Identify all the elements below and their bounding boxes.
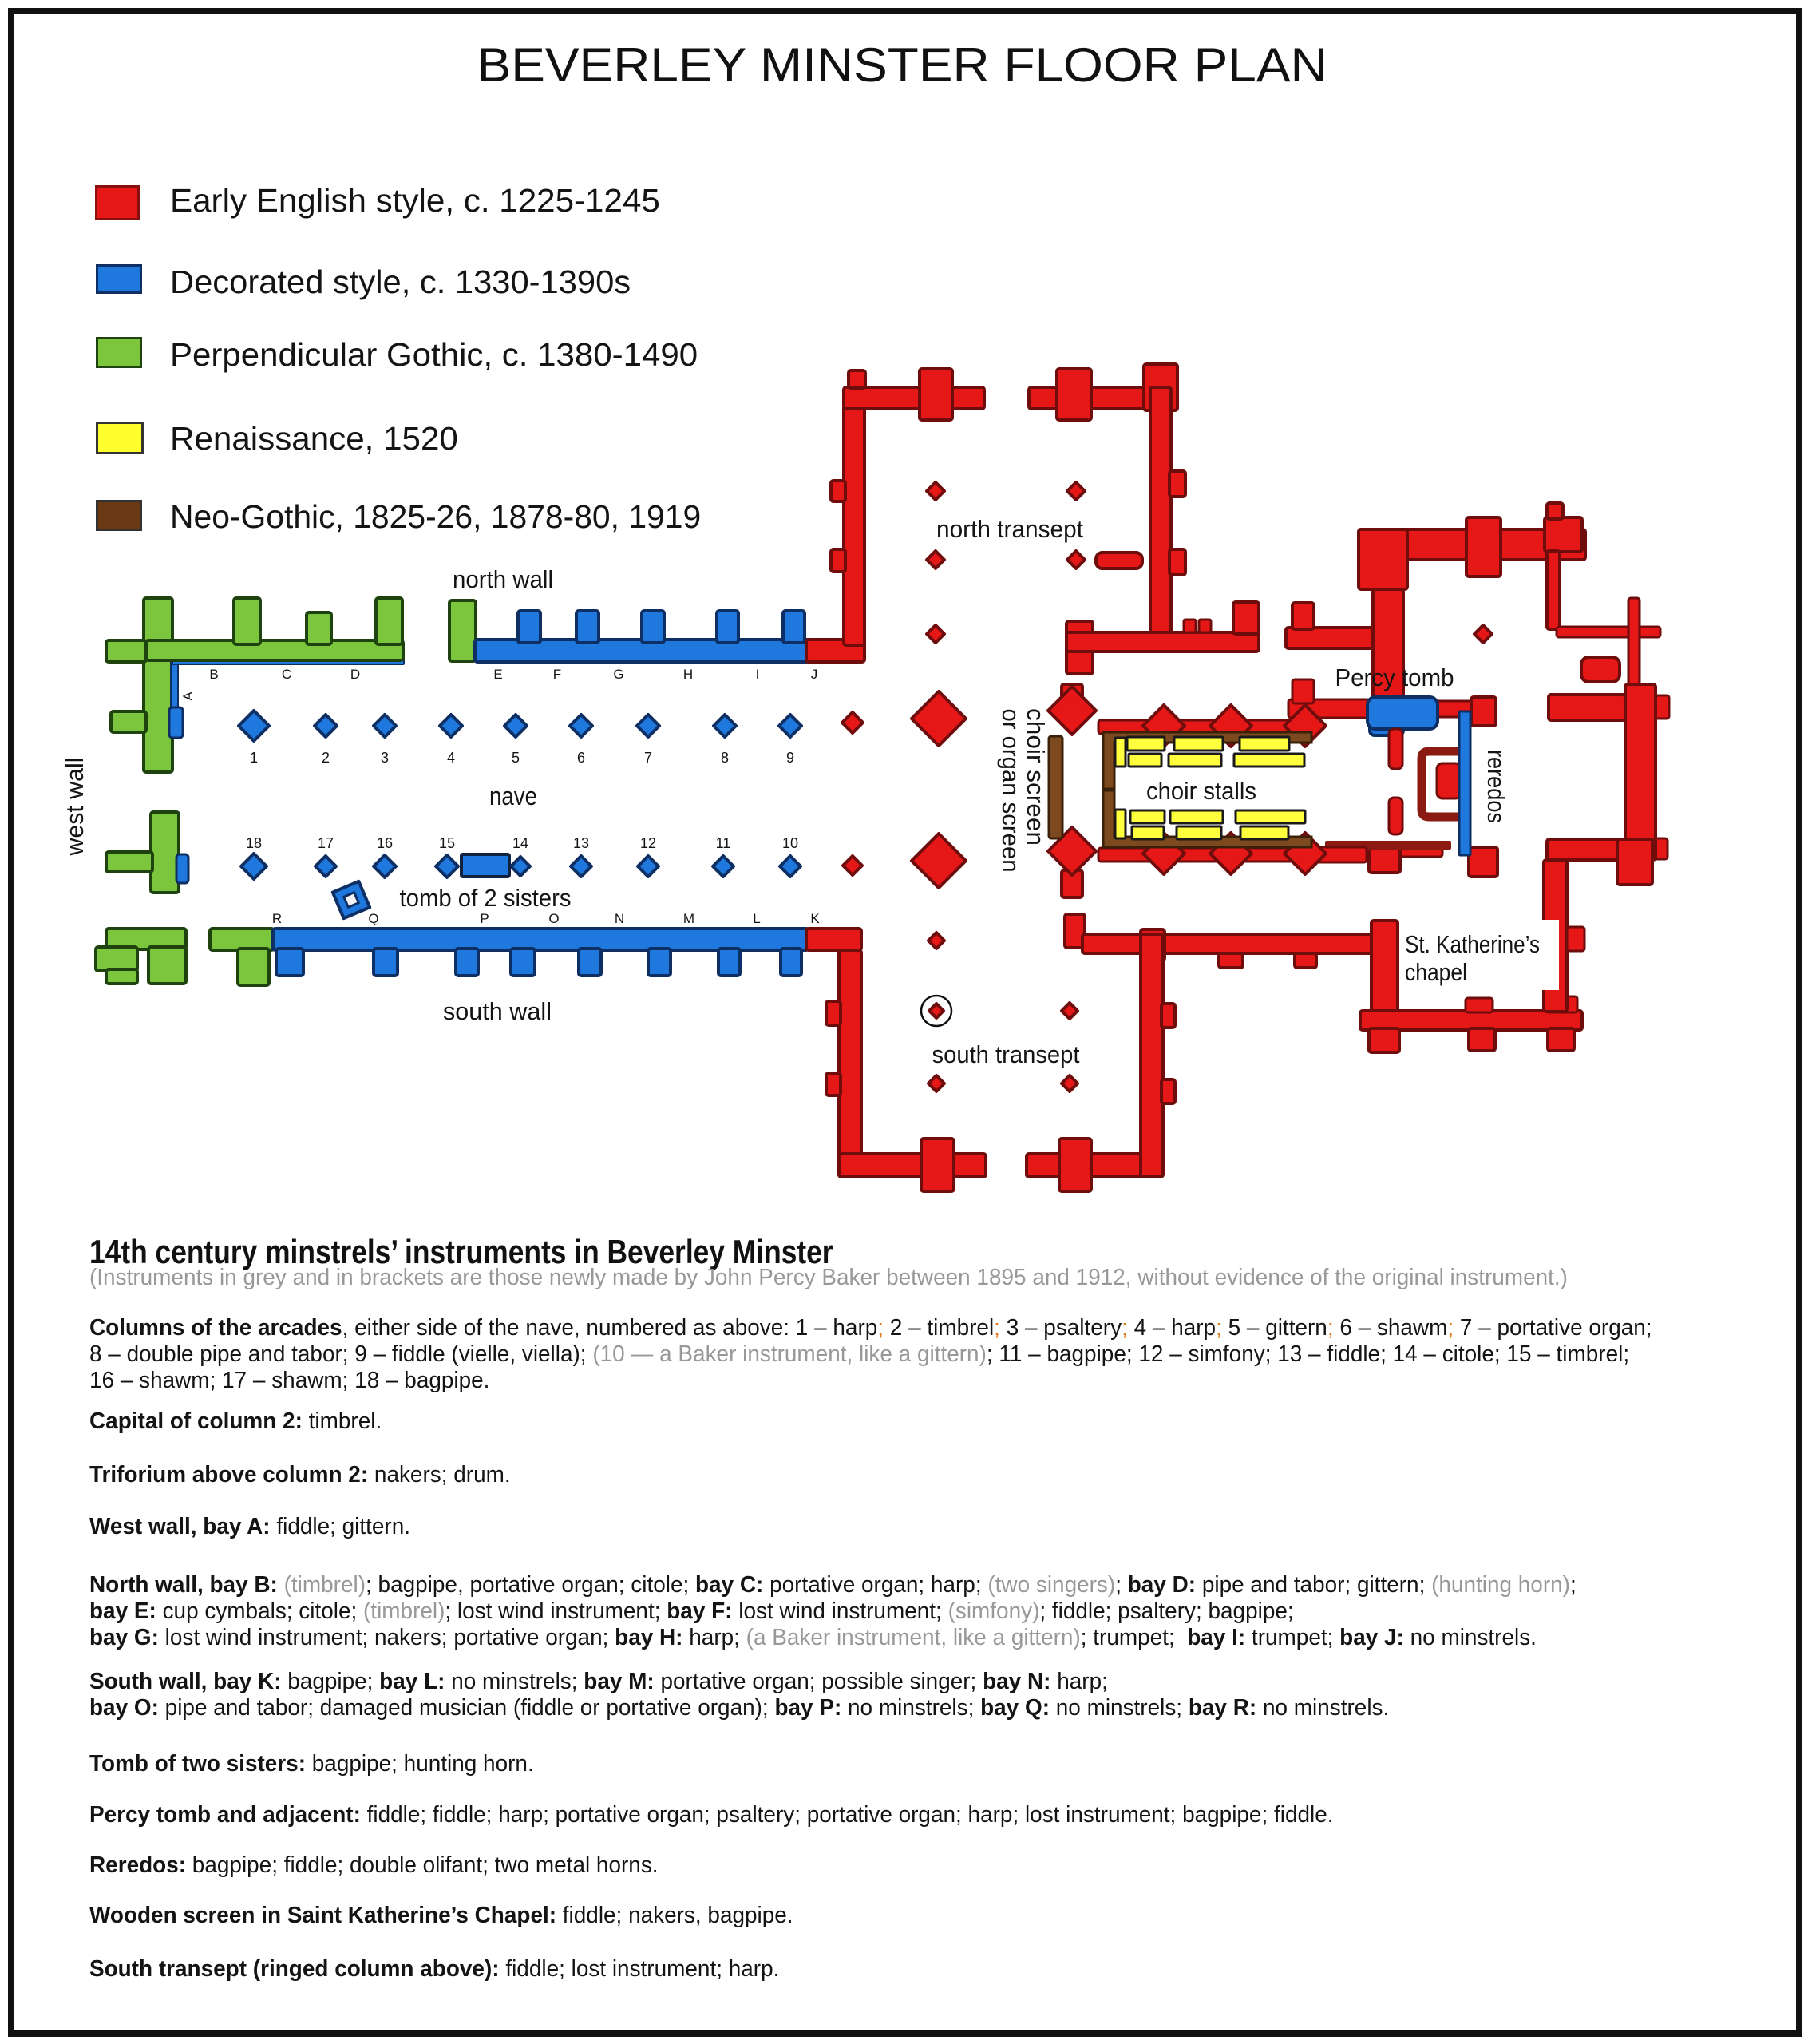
svg-text:12: 12 <box>640 835 656 851</box>
svg-text:south wall: south wall <box>443 997 552 1025</box>
svg-text:2: 2 <box>322 750 330 766</box>
svg-text:A: A <box>180 691 196 701</box>
svg-text:south transept: south transept <box>932 1040 1080 1068</box>
svg-text:E: E <box>493 667 502 682</box>
svg-text:tomb of 2 sisters: tomb of 2 sisters <box>400 884 572 912</box>
svg-text:J: J <box>811 667 818 682</box>
svg-text:9: 9 <box>786 750 794 766</box>
svg-text:3: 3 <box>381 750 389 766</box>
svg-text:Q: Q <box>368 911 378 926</box>
svg-text:reredos: reredos <box>1482 750 1510 823</box>
svg-text:15: 15 <box>439 835 455 851</box>
svg-text:B: B <box>209 667 218 682</box>
svg-text:north wall: north wall <box>453 565 553 593</box>
svg-text:18: 18 <box>246 835 262 851</box>
svg-text:chapel: chapel <box>1405 958 1467 986</box>
svg-text:St. Katherine’s: St. Katherine’s <box>1405 930 1540 958</box>
svg-text:5: 5 <box>512 750 520 766</box>
svg-text:H: H <box>683 667 693 682</box>
svg-text:O: O <box>548 911 559 926</box>
svg-text:D: D <box>350 667 360 682</box>
svg-text:7: 7 <box>644 750 652 766</box>
svg-text:P: P <box>480 911 489 926</box>
svg-text:G: G <box>613 667 623 682</box>
svg-text:10: 10 <box>782 835 798 851</box>
svg-text:L: L <box>753 911 760 926</box>
svg-text:M: M <box>683 911 694 926</box>
svg-text:choir stalls: choir stalls <box>1146 777 1256 805</box>
svg-text:I: I <box>756 667 760 682</box>
svg-text:K: K <box>810 911 820 926</box>
svg-text:13: 13 <box>573 835 589 851</box>
svg-text:north transept: north transept <box>936 515 1083 543</box>
svg-text:or organ screen: or organ screen <box>997 709 1025 873</box>
svg-text:4: 4 <box>447 750 455 766</box>
svg-text:1: 1 <box>250 750 258 766</box>
svg-text:11: 11 <box>716 835 731 851</box>
svg-text:17: 17 <box>318 835 334 851</box>
svg-text:8: 8 <box>721 750 729 766</box>
svg-text:N: N <box>615 911 624 926</box>
svg-text:nave: nave <box>489 782 537 810</box>
svg-text:R: R <box>272 911 282 926</box>
svg-text:F: F <box>553 667 561 682</box>
svg-text:west wall: west wall <box>61 758 89 857</box>
svg-text:choir screen: choir screen <box>1022 708 1050 846</box>
svg-text:C: C <box>282 667 291 682</box>
svg-text:14: 14 <box>512 835 528 851</box>
svg-text:16: 16 <box>377 835 393 851</box>
svg-text:Percy tomb: Percy tomb <box>1335 664 1454 691</box>
svg-text:6: 6 <box>577 750 585 766</box>
